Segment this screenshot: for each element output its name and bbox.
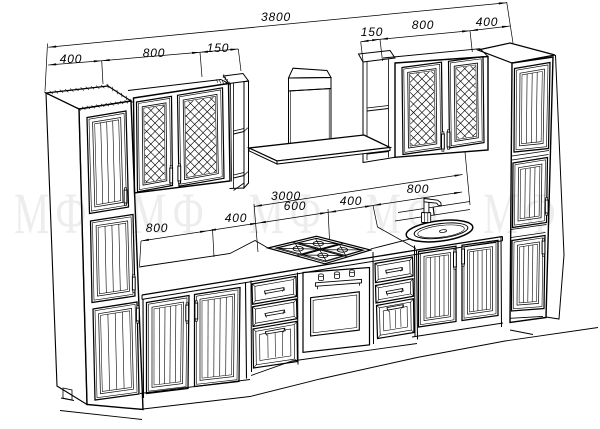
- svg-text:800: 800: [143, 46, 165, 60]
- svg-text:400: 400: [476, 15, 498, 29]
- svg-text:400: 400: [60, 52, 82, 66]
- svg-text:400: 400: [340, 194, 362, 208]
- svg-text:400: 400: [225, 211, 247, 225]
- svg-text:МФ: МФ: [483, 182, 562, 246]
- svg-text:600: 600: [284, 199, 306, 213]
- svg-text:150: 150: [361, 25, 383, 39]
- svg-text:3800: 3800: [261, 10, 291, 24]
- svg-text:150: 150: [207, 41, 229, 55]
- svg-text:800: 800: [412, 18, 434, 32]
- svg-text:800: 800: [407, 182, 429, 196]
- svg-text:800: 800: [146, 221, 168, 235]
